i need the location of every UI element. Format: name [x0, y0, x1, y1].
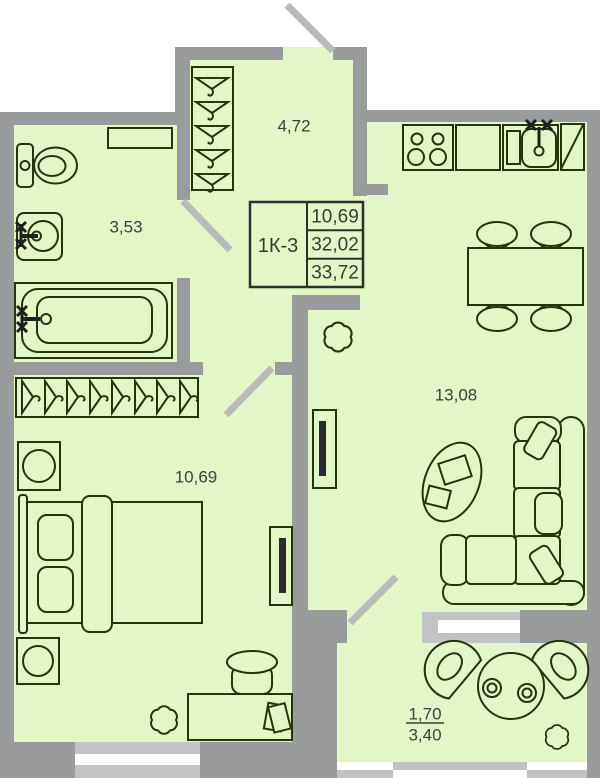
hallway-wardrobe: [192, 67, 233, 192]
wall-segment: [357, 110, 600, 122]
cup-icon: [518, 684, 536, 702]
wall-segment: [520, 610, 587, 643]
wall-segment: [292, 643, 337, 778]
area-label-balcony-full: 3,40: [408, 726, 441, 745]
toilet-icon: [17, 144, 77, 187]
area-label-hallway: 4,72: [277, 117, 310, 136]
stove-icon: [403, 125, 453, 170]
wall-segment: [177, 123, 190, 200]
wall-shelf: [108, 128, 172, 148]
desk-stool-icon: [227, 651, 277, 694]
bathtub-icon: [15, 283, 172, 358]
wall-segment: [333, 47, 353, 60]
floor-plan: 4,72 3,53 10,69 13,08 1,70 3,40 1К-3 10,…: [0, 0, 600, 778]
wall-segment: [177, 278, 190, 364]
stamp-living-area: 10,69: [311, 207, 359, 228]
plant-icon: [324, 323, 351, 352]
wall-segment: [0, 362, 203, 375]
area-label-balcony-coefficient: 1,70: [408, 705, 441, 724]
tv-icon: [313, 410, 336, 488]
wall-segment: [0, 112, 14, 778]
wall-segment: [587, 110, 600, 778]
area-label-bedroom: 10,69: [175, 468, 218, 487]
wall-segment: [292, 610, 347, 643]
area-label-bathroom: 3,53: [109, 218, 142, 237]
kitchen-sink-icon: [503, 120, 558, 170]
entrance-door-swing-icon: [287, 5, 333, 51]
wall-segment: [0, 742, 75, 778]
area-label-living-room: 13,08: [435, 386, 478, 405]
bedroom-wardrobe: [16, 378, 198, 417]
stamp-total-area: 33,72: [311, 263, 359, 284]
wall-segment: [353, 184, 388, 195]
balcony-glazing: [337, 762, 587, 778]
washbasin-icon: [16, 213, 62, 260]
stamp-unit-label: 1К-3: [258, 235, 299, 257]
wall-segment: [0, 112, 190, 125]
desk-icon: [188, 694, 292, 740]
wall-segment: [175, 47, 283, 60]
balcony-table-icon: [478, 653, 544, 719]
balcony-top-window: [422, 612, 520, 643]
kitchen-counter: [456, 125, 500, 170]
cup-icon: [483, 679, 501, 697]
title-stamp: 1К-3 10,69 32,02 33,72: [250, 202, 363, 287]
double-bed-icon: [19, 495, 202, 633]
wall-segment: [292, 310, 308, 610]
bedroom-window: [75, 742, 200, 778]
nightstand-icon: [17, 638, 59, 684]
fridge-icon: [561, 124, 584, 170]
plant-icon: [151, 706, 177, 734]
wall-segment: [292, 295, 360, 310]
stamp-area: 32,02: [311, 235, 359, 256]
tv-icon: [270, 527, 292, 605]
nightstand-icon: [18, 442, 60, 490]
wall-segment: [200, 742, 297, 778]
